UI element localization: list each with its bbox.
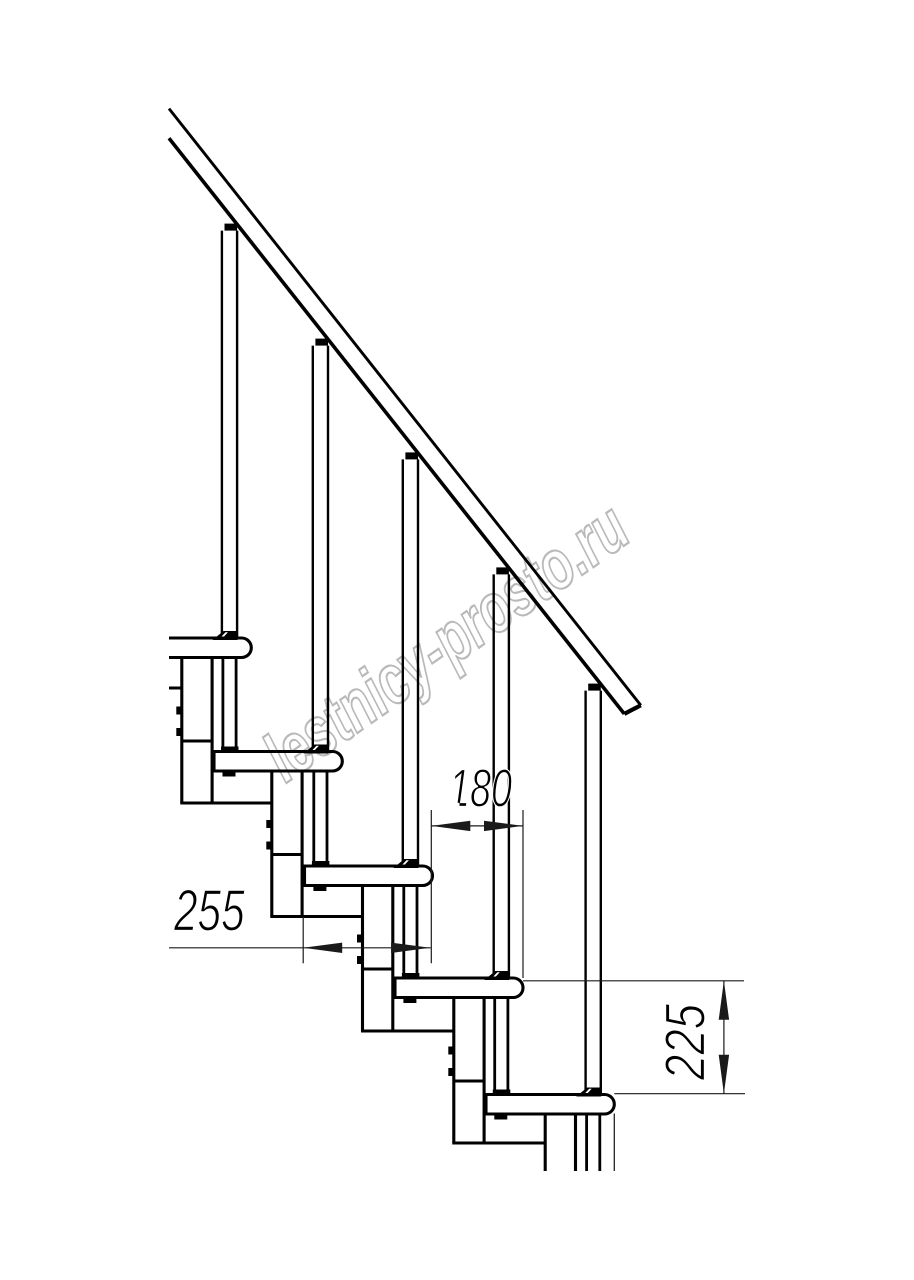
svg-text:225: 225 bbox=[653, 1004, 717, 1081]
svg-text:255: 255 bbox=[173, 878, 245, 943]
svg-text:180: 180 bbox=[449, 758, 512, 818]
